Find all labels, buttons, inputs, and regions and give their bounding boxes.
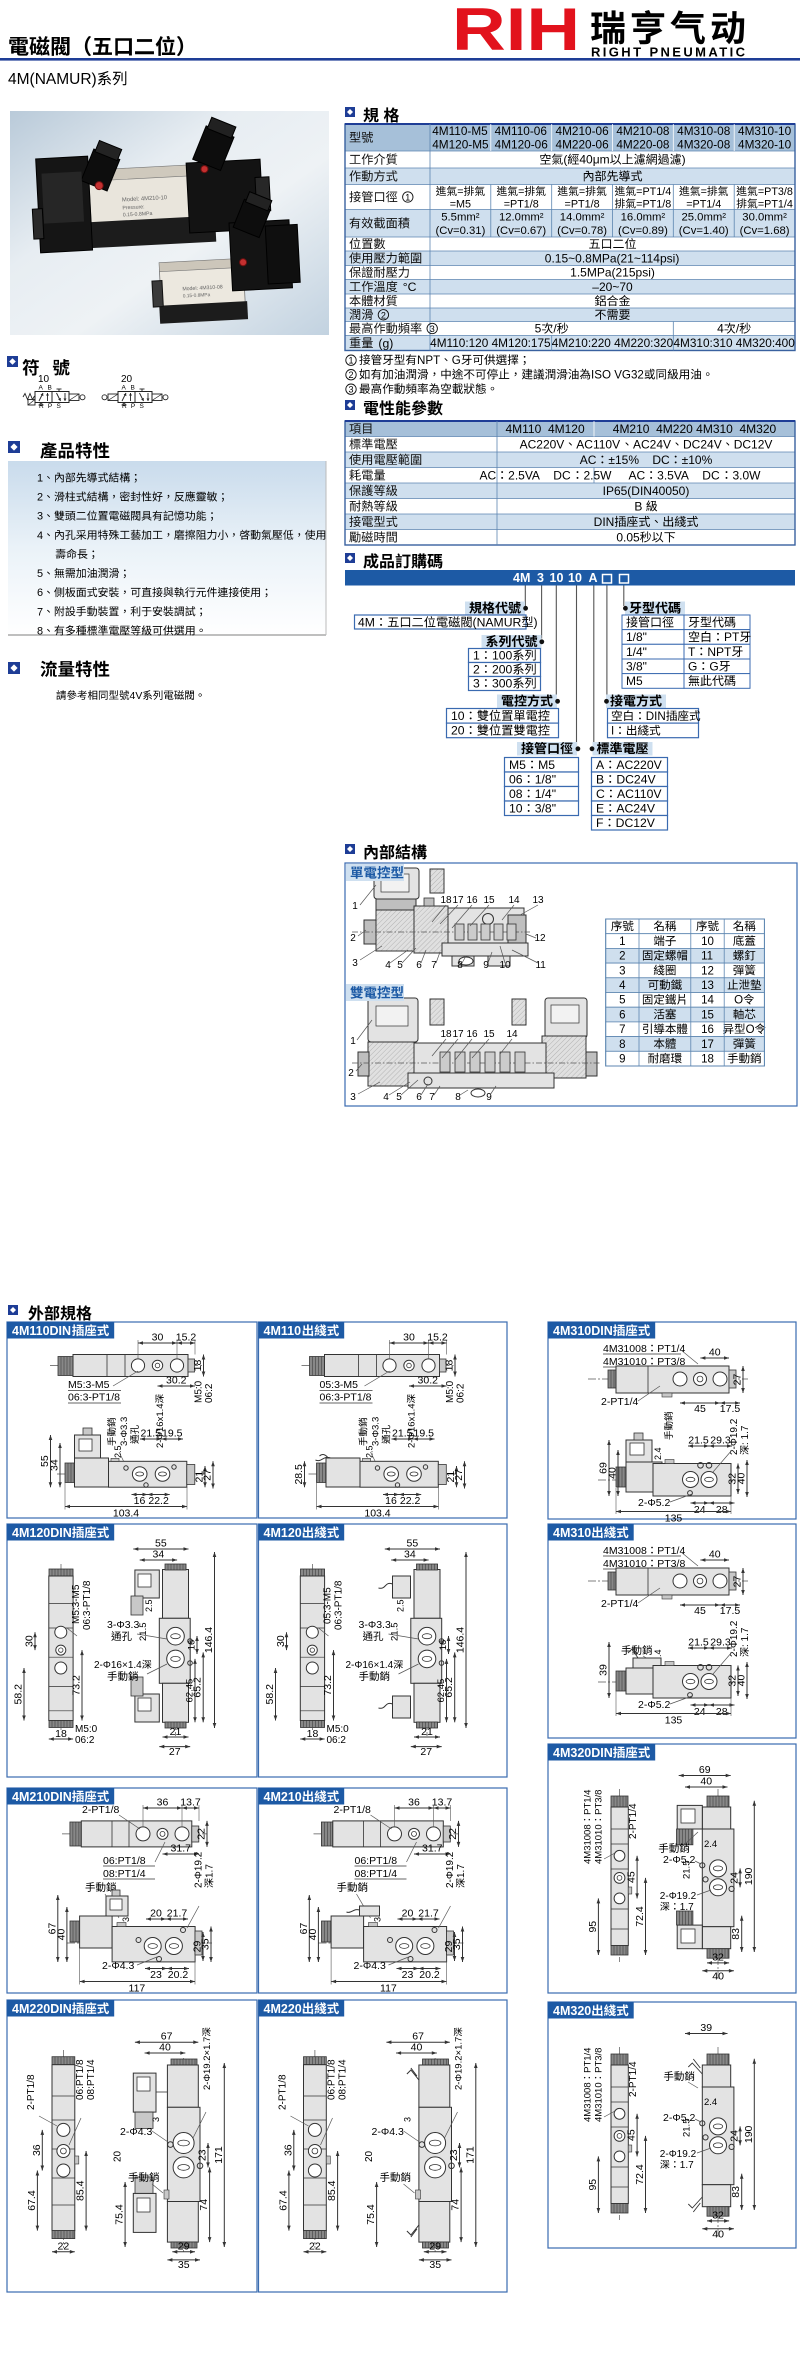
svg-text:3: 3 [350,1092,356,1103]
svg-text:22: 22 [447,1828,459,1840]
svg-text:06:2: 06:2 [75,1735,95,1746]
svg-text:M5: M5 [538,758,555,772]
svg-text:35: 35 [178,2259,190,2271]
svg-text:RIH: RIH [452,0,580,63]
svg-text:AC220V: AC220V [616,758,662,772]
svg-text:06:PT1/8: 06:PT1/8 [75,2059,86,2100]
svg-text:6: 6 [619,1009,625,1021]
svg-text:A: A [589,571,598,585]
svg-text:39: 39 [700,2022,712,2034]
svg-text:8: 8 [455,1092,461,1103]
svg-text:40μm: 40μm [579,153,609,167]
svg-text:3-Φ3.3: 3-Φ3.3 [119,1417,130,1446]
svg-text:17: 17 [452,895,464,906]
svg-text:4M310-10: 4M310-10 [738,124,792,138]
svg-text:I: I [611,725,614,738]
svg-text:4M310:310 4M320:400: 4M310:310 4M320:400 [673,336,795,350]
svg-text:AC220V: AC220V [520,437,565,451]
svg-text:ISO VG32: ISO VG32 [591,369,644,382]
svg-text:08:PT1/4: 08:PT1/4 [103,1868,146,1880]
svg-text:G: G [452,354,461,367]
svg-text:14: 14 [508,895,520,906]
svg-text:117: 117 [129,1983,146,1995]
svg-text:=: = [579,186,585,198]
svg-text:0.15~0.8MPa(21~114psi): 0.15~0.8MPa(21~114psi) [545,251,680,265]
svg-text:29.3: 29.3 [710,1435,731,1447]
svg-text:2.4: 2.4 [704,1839,717,1850]
svg-text:06:3-PT1/8: 06:3-PT1/8 [334,1580,345,1630]
svg-text:2.5: 2.5 [144,1599,154,1612]
svg-text:(g): (g) [378,336,393,350]
svg-text:15: 15 [483,895,495,906]
svg-text:M5:0: M5:0 [445,1380,456,1403]
svg-text:=: = [518,186,524,198]
svg-text:DC12V: DC12V [616,816,656,830]
svg-text:17: 17 [452,1029,464,1040]
svg-text:Pressure:: Pressure: [122,204,144,211]
svg-text:27: 27 [202,1469,214,1481]
svg-text:20: 20 [364,2150,375,2162]
svg-text:3: 3 [151,2117,161,2122]
svg-text:08:PT1/4: 08:PT1/4 [338,2059,349,2100]
svg-text:3/8": 3/8" [626,659,647,673]
svg-text:2-Φ4.3: 2-Φ4.3 [372,2126,404,2138]
svg-text:72.4: 72.4 [634,2164,646,2185]
svg-text:15: 15 [483,1029,495,1040]
svg-text:73.2: 73.2 [322,1675,334,1696]
svg-text:21.5: 21.5 [390,1623,401,1642]
svg-text:R P S: R P S [39,403,62,410]
svg-text:31.7: 31.7 [171,1843,192,1855]
svg-text:5: 5 [37,568,43,580]
svg-text:73.2: 73.2 [71,1675,83,1696]
svg-text:7: 7 [619,1024,625,1036]
svg-text:2-Φ16x1.4: 2-Φ16x1.4 [407,1403,418,1448]
svg-text:1/4": 1/4" [535,787,556,801]
svg-text:4M110DIN: 4M110DIN [12,1324,71,1338]
svg-text:4M31008: 4M31008 [583,2082,594,2122]
svg-text:85.4: 85.4 [326,2180,338,2201]
svg-text:30: 30 [275,1635,287,1647]
svg-text:06: 06 [509,773,523,787]
svg-text:21.5: 21.5 [392,1428,413,1440]
svg-text:17.5: 17.5 [720,1605,741,1617]
svg-text:5.5mm²: 5.5mm² [441,211,480,223]
svg-text:31.7: 31.7 [422,1843,443,1855]
svg-text:M5:0: M5:0 [75,1724,98,1735]
svg-text:2-PT1/8: 2-PT1/8 [334,1804,372,1816]
svg-text:30: 30 [403,1332,415,1344]
svg-text:(Cv=0.78): (Cv=0.78) [557,225,607,237]
svg-text:83: 83 [730,1928,742,1940]
svg-text:5: 5 [535,322,542,336]
svg-text:NPT: NPT [417,354,440,367]
svg-text:20: 20 [112,2150,123,2162]
svg-text:18: 18 [192,1360,204,1372]
svg-text:4M31010: 4M31010 [594,1824,605,1864]
svg-text:2-Φ19.2: 2-Φ19.2 [194,1851,205,1888]
svg-text:10: 10 [568,571,582,585]
svg-text:B: B [48,385,52,392]
svg-text:100: 100 [492,649,513,663]
svg-text:1.5MPa(215psi): 1.5MPa(215psi) [570,266,655,280]
svg-text:3-Φ3.3: 3-Φ3.3 [359,1619,391,1631]
svg-text:40: 40 [411,2042,423,2054]
svg-text:34: 34 [404,1549,416,1561]
svg-text:(Cv=0.31): (Cv=0.31) [435,225,485,237]
svg-text:2-Φ19.2×1.7: 2-Φ19.2×1.7 [202,2037,213,2090]
svg-text:2-Φ5.2: 2-Φ5.2 [638,1699,670,1711]
svg-text:DIN: DIN [646,710,666,723]
svg-text:11: 11 [535,960,546,971]
svg-text:21: 21 [421,1726,433,1738]
svg-text:2-Φ16×1.4: 2-Φ16×1.4 [346,1660,394,1671]
svg-text:M5: M5 [626,674,643,688]
svg-text:(Cv=0.89): (Cv=0.89) [618,225,668,237]
svg-text:21.7: 21.7 [418,1908,439,1920]
svg-text:13: 13 [701,980,714,992]
svg-text:6: 6 [37,587,43,599]
svg-text:1.7: 1.7 [205,1864,216,1878]
svg-text:1.7: 1.7 [456,1864,467,1878]
svg-text:32: 32 [712,2210,724,2222]
svg-text:16: 16 [466,895,478,906]
svg-text:05:3-M5: 05:3-M5 [323,1587,334,1624]
svg-text:36: 36 [282,2144,294,2156]
svg-text:20.2: 20.2 [419,1969,440,1981]
svg-text:36: 36 [31,2144,43,2156]
svg-text:200: 200 [492,663,513,677]
svg-text:DIN: DIN [594,515,615,529]
svg-text:21.5: 21.5 [688,1435,709,1447]
svg-text:PT1/4: PT1/4 [583,2048,594,2073]
svg-text:R P S: R P S [122,403,145,410]
svg-text:34: 34 [49,1459,61,1471]
svg-text:13.7: 13.7 [432,1797,453,1809]
svg-text:4M(NAMUR): 4M(NAMUR) [8,71,97,88]
svg-text:4M220-08: 4M220-08 [616,137,670,151]
svg-text:4M220DIN: 4M220DIN [12,2002,72,2016]
svg-text:±15% DC: ±15% DC [608,453,670,467]
svg-text:62.45: 62.45 [436,1679,447,1703]
svg-text:75.4: 75.4 [114,2204,126,2225]
svg-text:=: = [457,186,463,198]
svg-text:2-PT1/4: 2-PT1/4 [628,1803,639,1839]
svg-text:: 1.7: : 1.7 [740,1425,751,1445]
svg-text:2: 2 [348,1068,354,1079]
svg-text:1: 1 [405,193,410,203]
svg-text:146.4: 146.4 [203,1627,215,1653]
svg-text:103.4: 103.4 [113,1508,139,1520]
svg-text:16: 16 [438,1640,449,1651]
svg-text:2: 2 [37,492,43,504]
svg-text:18: 18 [307,1728,319,1740]
svg-text:83: 83 [730,2186,742,2198]
svg-text:27: 27 [453,1469,465,1481]
svg-text:29: 29 [429,2241,441,2253]
svg-text:F: F [596,816,603,830]
svg-text:T: T [688,645,696,659]
svg-text:M5:0: M5:0 [327,1724,350,1735]
svg-text:190: 190 [743,1867,755,1885]
svg-text:35: 35 [451,1938,463,1950]
svg-text:2.5VA DC: 2.5VA DC [508,468,571,482]
svg-text:2-Φ19.2: 2-Φ19.2 [445,1851,456,1888]
svg-text:3: 3 [430,324,435,334]
svg-text:45: 45 [694,1403,706,1415]
svg-text:4V: 4V [130,690,143,702]
svg-text:13: 13 [532,895,544,906]
svg-text:23: 23 [150,1969,162,1981]
svg-text:1/8": 1/8" [626,630,647,644]
svg-text:45: 45 [694,1605,706,1617]
svg-text:40: 40 [712,1971,724,1983]
svg-text:14: 14 [701,995,714,1007]
svg-text:°C: °C [403,280,417,294]
svg-text:2-Φ19.2: 2-Φ19.2 [660,1891,697,1902]
svg-text:4M210 4M220 4M310 4M320: 4M210 4M220 4M310 4M320 [613,422,777,436]
svg-text:1: 1 [352,901,358,912]
svg-text:2-Φ5.2: 2-Φ5.2 [638,1497,670,1509]
svg-text:3.0W: 3.0W [733,468,762,482]
svg-text:=PT1/8: =PT1/8 [504,199,539,211]
svg-text:18: 18 [440,895,452,906]
svg-text:40: 40 [712,2229,724,2241]
svg-text:23: 23 [402,1969,414,1981]
svg-text:2-Φ4.3: 2-Φ4.3 [120,2126,152,2138]
svg-text:10: 10 [509,802,523,816]
svg-text:4: 4 [37,530,43,542]
svg-text:O: O [746,1024,755,1036]
svg-text:2-Φ19.2×1.7: 2-Φ19.2×1.7 [454,2037,465,2090]
svg-text:(Cv=1.40): (Cv=1.40) [679,225,729,237]
svg-text:30.0mm²: 30.0mm² [742,211,787,223]
svg-text:72.4: 72.4 [634,1906,646,1927]
svg-text:30.2: 30.2 [166,1375,187,1387]
svg-text:3-Φ3.3: 3-Φ3.3 [371,1417,382,1446]
svg-text:25.0mm²: 25.0mm² [681,211,726,223]
svg-text:40: 40 [709,1549,721,1561]
svg-text:5: 5 [397,960,403,971]
svg-text:74: 74 [450,2199,462,2211]
svg-text:2.5: 2.5 [113,1445,123,1458]
svg-text:2-PT1/4: 2-PT1/4 [601,1598,639,1610]
svg-text:3: 3 [537,571,544,585]
svg-text:62.45: 62.45 [185,1679,196,1703]
svg-text:4: 4 [383,1092,389,1103]
svg-text:AC110V: AC110V [576,437,620,451]
svg-text:4M31008: 4M31008 [583,1824,594,1864]
svg-text:RIGHT PNEUMATIC: RIGHT PNEUMATIC [591,45,747,60]
svg-text:28: 28 [716,1504,728,1516]
svg-text:2: 2 [619,951,625,963]
svg-text:74: 74 [198,2199,210,2211]
svg-text:4M120-06: 4M120-06 [495,137,549,151]
svg-text:21.7: 21.7 [167,1908,188,1920]
svg-text:–20~70: –20~70 [592,280,633,294]
svg-text:11: 11 [701,951,713,963]
svg-text:40: 40 [736,1675,748,1687]
svg-text:40: 40 [709,1347,721,1359]
svg-text:PT: PT [724,630,740,644]
svg-text:2: 2 [473,663,480,677]
svg-text:G: G [709,659,718,673]
svg-text:15.2: 15.2 [176,1332,197,1344]
svg-text:06:3-PT1/8: 06:3-PT1/8 [82,1580,93,1630]
svg-text:1: 1 [37,473,43,485]
svg-text:19.5: 19.5 [414,1428,435,1440]
svg-text:4M31008: 4M31008 [603,1343,647,1355]
svg-text:40: 40 [55,1929,67,1941]
svg-text:1: 1 [349,356,354,366]
svg-text:4M210-06: 4M210-06 [556,124,610,138]
svg-text:190: 190 [743,2125,755,2143]
svg-text:30.2: 30.2 [418,1375,439,1387]
svg-text:06:2: 06:2 [456,1383,467,1403]
svg-text:30: 30 [24,1635,36,1647]
svg-text:8: 8 [457,960,463,971]
svg-text:300: 300 [492,677,513,691]
svg-text:=M5: =M5 [450,199,471,211]
svg-text:2.4: 2.4 [653,1447,663,1460]
svg-text:36: 36 [408,1797,420,1809]
svg-text:12: 12 [534,933,546,944]
svg-text:12: 12 [701,965,714,977]
svg-text:7: 7 [37,606,43,618]
svg-text:4M120-M5: 4M120-M5 [432,137,489,151]
svg-text:E: E [596,802,604,816]
svg-text:4M: 4M [358,616,375,630]
svg-text:4M220-06: 4M220-06 [556,137,610,151]
svg-text:67.4: 67.4 [277,2190,289,2211]
svg-text:6: 6 [416,1092,422,1103]
svg-text:3: 3 [619,965,625,977]
svg-text:21.5: 21.5 [688,1637,709,1649]
svg-text:20: 20 [451,724,465,738]
svg-text:34: 34 [153,1549,165,1561]
svg-text:4M: 4M [513,571,530,585]
svg-text:8: 8 [619,1039,625,1051]
svg-text:=PT3/8: =PT3/8 [758,186,793,198]
svg-text:G: G [688,659,697,673]
svg-text:1.7: 1.7 [680,2160,694,2171]
svg-text:06:PT1/8: 06:PT1/8 [355,1855,398,1867]
svg-text:3: 3 [473,677,480,691]
svg-text:DC24V: DC24V [683,437,722,451]
svg-text:21: 21 [170,1726,182,1738]
svg-text:30: 30 [152,1332,164,1344]
svg-text:AC24V: AC24V [633,437,671,451]
svg-text:24: 24 [729,1872,741,1884]
svg-text:16: 16 [466,1029,478,1040]
svg-text:67.4: 67.4 [26,2190,38,2211]
svg-text:35: 35 [429,2259,441,2271]
svg-text:8: 8 [37,625,43,637]
svg-text:3: 3 [403,2117,413,2122]
svg-text:69: 69 [699,1764,711,1776]
svg-text:117: 117 [380,1983,397,1995]
svg-text:95: 95 [587,1921,599,1933]
svg-text:4: 4 [385,960,391,971]
svg-text:16: 16 [701,1024,714,1036]
svg-text:=PT1/8: =PT1/8 [636,199,671,211]
svg-text:3: 3 [37,511,43,523]
svg-text:40: 40 [736,1473,748,1485]
svg-text:4M310: 4M310 [553,1526,591,1540]
svg-text:06:3-PT1/8: 06:3-PT1/8 [320,1392,372,1404]
svg-text:29.3: 29.3 [710,1637,731,1649]
svg-text:39: 39 [598,1664,610,1676]
svg-text:4M320-08: 4M320-08 [677,137,731,151]
svg-text:=PT1/4: =PT1/4 [758,199,793,211]
svg-text:2-Φ19.2: 2-Φ19.2 [660,2149,697,2160]
svg-text:35: 35 [200,1938,212,1950]
svg-text:08: 08 [509,787,523,801]
svg-text:AC24V: AC24V [616,802,655,816]
svg-text:2-PT1/8: 2-PT1/8 [82,1804,120,1816]
svg-text:58.2: 58.2 [264,1684,276,1705]
svg-text:3-Φ3.3: 3-Φ3.3 [107,1619,139,1631]
svg-text:16: 16 [134,1495,146,1507]
svg-text:3.5VA DC: 3.5VA DC [657,468,720,482]
svg-text:18: 18 [55,1728,67,1740]
svg-text:2: 2 [350,933,356,944]
svg-text:2.5: 2.5 [365,1445,375,1458]
svg-text:PT1/4: PT1/4 [657,1343,685,1355]
svg-text:=PT1/4: =PT1/4 [686,199,721,211]
svg-text:27: 27 [420,1746,432,1758]
svg-text:4M31010: 4M31010 [594,2082,605,2122]
svg-text:85.4: 85.4 [75,2180,87,2201]
svg-text:18: 18 [444,1360,456,1372]
svg-text:1: 1 [350,1036,356,1047]
svg-text:4: 4 [619,980,626,992]
svg-text:B: B [596,773,604,787]
svg-text:16: 16 [187,1640,198,1651]
svg-text:1/8": 1/8" [535,773,556,787]
svg-text:22: 22 [196,1828,208,1840]
svg-text:2-PT1/4: 2-PT1/4 [601,1396,639,1408]
svg-text:4M110: 4M110 [264,1324,302,1338]
svg-text:17.5: 17.5 [720,1403,741,1415]
svg-text:O: O [734,995,743,1007]
svg-text:2-PT1/8: 2-PT1/8 [278,2074,289,2110]
svg-text:=PT1/4: =PT1/4 [636,186,671,198]
svg-text:95: 95 [587,2179,599,2191]
svg-text:3: 3 [352,958,358,969]
svg-text:4M320DIN: 4M320DIN [553,1746,613,1760]
svg-text:32: 32 [712,1952,724,1964]
svg-text:3: 3 [121,1917,131,1922]
svg-text:27: 27 [732,1576,744,1588]
svg-text:B: B [634,499,645,513]
svg-text:M5:0: M5:0 [194,1380,205,1403]
svg-text:4M310-08: 4M310-08 [677,124,731,138]
svg-text:23: 23 [448,2149,460,2161]
svg-text:14: 14 [506,1029,518,1040]
svg-text:06:PT1/8: 06:PT1/8 [103,1855,146,1867]
svg-text:27: 27 [732,1374,744,1386]
svg-text:17: 17 [701,1039,714,1051]
svg-text:2.5W: 2.5W [584,468,613,482]
svg-text:4M310DIN: 4M310DIN [553,1324,613,1338]
svg-text:4M110 4M120: 4M110 4M120 [505,422,584,436]
svg-text:06:PT1/8: 06:PT1/8 [327,2059,338,2100]
svg-text:PT3/8: PT3/8 [594,2048,605,2073]
svg-text:16: 16 [385,1495,397,1507]
svg-text:05:3-M5: 05:3-M5 [320,1379,359,1391]
svg-text:171: 171 [464,2146,476,2164]
